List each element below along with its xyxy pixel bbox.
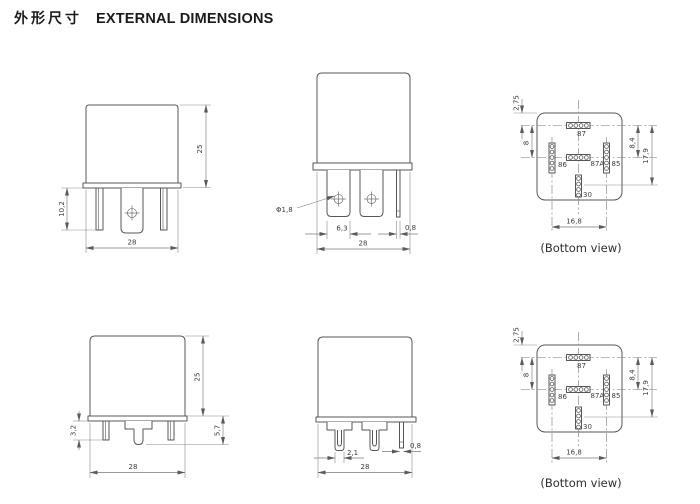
front-view-quick-connect: 25 10,2 28 bbox=[58, 105, 211, 253]
dim-label-hole-dia: Φ1,8 bbox=[276, 206, 293, 214]
pin-slot-87 bbox=[567, 355, 591, 361]
dim-label-base-to-pin-tip: 5,7 bbox=[214, 425, 222, 436]
datasheet-page: 外形尺寸 EXTERNAL DIMENSIONS bbox=[0, 0, 700, 504]
dim-row1-to-row2-left: 8 bbox=[523, 358, 533, 390]
pin-slot-87 bbox=[567, 123, 591, 129]
relay-pins bbox=[96, 188, 167, 233]
caption-bottom-view: (Bottom view) bbox=[540, 476, 621, 490]
dim-label-pin-tip-width: 2,1 bbox=[347, 449, 358, 457]
pin-slot-86 bbox=[549, 375, 555, 405]
pin-label-86: 86 bbox=[558, 393, 567, 401]
pin-label-87: 87 bbox=[577, 362, 586, 370]
pin-slot-30 bbox=[576, 175, 582, 197]
pin-slot-30 bbox=[576, 407, 582, 429]
pin-label-87: 87 bbox=[577, 130, 586, 138]
bottom-view-pcb: 87 86 87A 85 30 2,75 8 8,4 17,9 bbox=[513, 327, 659, 490]
pin-slot-85 bbox=[604, 375, 610, 405]
relay-flange bbox=[313, 163, 412, 170]
pin-label-87A: 87A bbox=[591, 160, 605, 168]
dim-body-height: 25 bbox=[185, 336, 229, 416]
dim-label-body-width: 28 bbox=[361, 463, 370, 471]
dim-thin-pin-width: 0,8 bbox=[378, 221, 418, 239]
dim-label-pin-row-span: 16,8 bbox=[566, 449, 582, 457]
relay-body bbox=[90, 336, 185, 416]
pin-label-87A: 87A bbox=[591, 392, 605, 400]
relay-body bbox=[86, 105, 178, 183]
dim-label-row1-to-row2-left: 8 bbox=[523, 373, 531, 377]
relay-pins bbox=[327, 422, 404, 451]
side-view-quick-connect: Φ1,8 6,3 0,8 28 bbox=[276, 73, 418, 254]
pin-label-30: 30 bbox=[583, 191, 592, 199]
dim-label-body-height: 25 bbox=[194, 373, 202, 382]
dim-label-row1-to-row2-right: 8,4 bbox=[629, 137, 637, 149]
dim-pin-row-span: 16,8 bbox=[552, 218, 607, 228]
dim-label-pin-protrusion: 3,2 bbox=[70, 425, 78, 436]
dim-label-thin-pin-width: 0,8 bbox=[405, 224, 416, 232]
dim-row1-to-row2-right: 8,4 bbox=[629, 358, 639, 390]
dim-row1-to-pin30: 17,9 bbox=[584, 126, 658, 186]
bottom-view-quick-connect: 87 86 87A 85 30 2,75 8 8,4 17,9 bbox=[513, 95, 659, 255]
dim-label-body-height: 25 bbox=[196, 145, 204, 154]
dim-label-row1-to-row2-right: 8,4 bbox=[629, 369, 637, 381]
relay-body bbox=[318, 337, 412, 417]
dim-label-row1-to-pin30: 17,9 bbox=[642, 148, 650, 164]
relay-flange bbox=[316, 417, 416, 422]
relay-flange bbox=[83, 183, 181, 188]
dim-label-edge-to-row1: 2,75 bbox=[513, 327, 521, 343]
dim-terminal-width: 6,3 bbox=[305, 221, 371, 239]
dimension-drawings: 25 10,2 28 bbox=[0, 0, 700, 504]
dim-label-body-width: 28 bbox=[129, 463, 138, 471]
pin-slot-87A bbox=[567, 387, 591, 393]
dim-pin-tip-width: 2,1 bbox=[314, 449, 364, 463]
dim-label-terminal-width: 6,3 bbox=[336, 225, 347, 233]
dim-label-pin-row-span: 16,8 bbox=[566, 218, 582, 226]
dim-body-height: 25 bbox=[180, 105, 211, 188]
relay-body bbox=[317, 73, 410, 163]
pin-slot-87A bbox=[567, 155, 591, 161]
dim-row1-to-row2-right: 8,4 bbox=[629, 126, 639, 158]
relay-base bbox=[88, 416, 187, 421]
dim-edge-to-row1: 2,75 bbox=[513, 327, 538, 371]
dim-pin-row-span: 16,8 bbox=[552, 449, 607, 459]
dim-label-pin-length: 10,2 bbox=[58, 201, 66, 217]
dim-label-body-width: 28 bbox=[359, 240, 368, 248]
side-view-pcb: 2,1 0,8 28 bbox=[314, 337, 421, 478]
relay-pins bbox=[327, 170, 400, 217]
pin-label-85: 85 bbox=[612, 160, 621, 168]
caption-bottom-view: (Bottom view) bbox=[540, 241, 621, 255]
dim-hole-dia: Φ1,8 bbox=[276, 196, 335, 214]
relay-pins bbox=[103, 421, 174, 445]
dim-pin-length: 10,2 bbox=[58, 188, 96, 230]
dim-row1-to-row2-left: 8 bbox=[523, 126, 533, 158]
dim-label-row1-to-row2-left: 8 bbox=[523, 141, 531, 145]
dim-label-edge-to-row1: 2,75 bbox=[513, 95, 521, 111]
pin-slot-86 bbox=[549, 143, 555, 173]
dim-label-row1-to-pin30: 17,9 bbox=[642, 380, 650, 396]
dim-edge-to-row1: 2,75 bbox=[513, 95, 538, 139]
front-view-pcb: 25 3,2 5,7 28 bbox=[70, 336, 230, 478]
dim-label-body-width: 28 bbox=[128, 239, 137, 247]
pin-label-86: 86 bbox=[558, 161, 567, 169]
dim-body-width: 28 bbox=[318, 424, 412, 478]
pin-label-30: 30 bbox=[583, 423, 592, 431]
dim-label-thin-pin-width: 0,8 bbox=[410, 442, 421, 450]
pin-label-85: 85 bbox=[612, 392, 621, 400]
pin-slot-85 bbox=[604, 143, 610, 173]
dim-row1-to-pin30: 17,9 bbox=[584, 358, 658, 418]
